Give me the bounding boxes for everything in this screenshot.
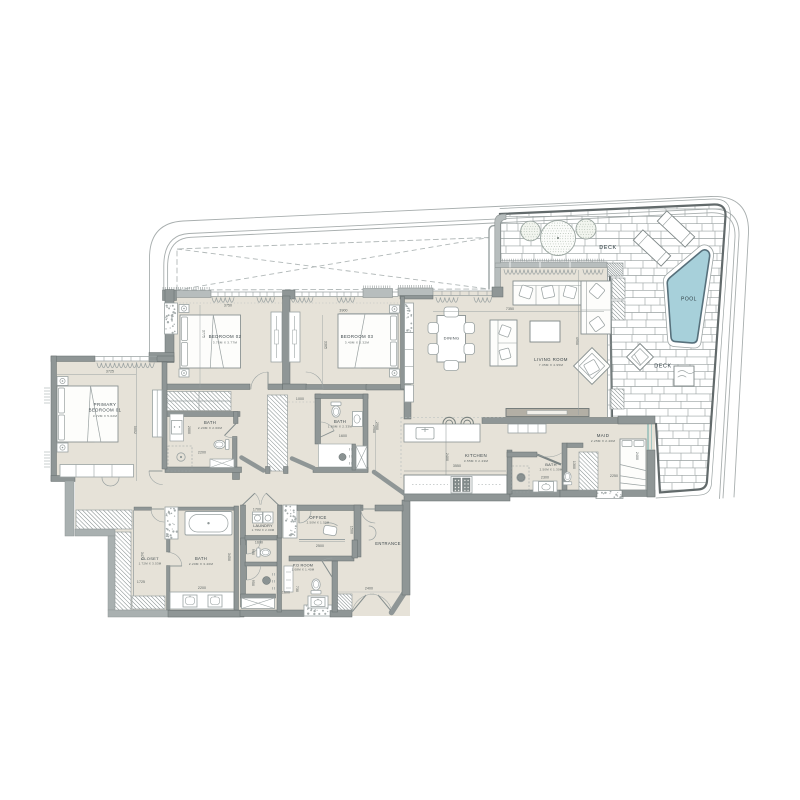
- svg-text:3450: 3450: [227, 553, 231, 561]
- svg-text:DECK: DECK: [654, 364, 671, 370]
- svg-text:BATH: BATH: [204, 420, 216, 425]
- svg-text:2500: 2500: [316, 544, 324, 548]
- svg-text:1700: 1700: [253, 508, 261, 512]
- svg-text:OFFICE: OFFICE: [309, 515, 326, 520]
- svg-text:KITCHEN: KITCHEN: [465, 453, 487, 458]
- svg-text:3473: 3473: [140, 552, 144, 560]
- svg-text:3.75M X 3.77M: 3.75M X 3.77M: [213, 341, 237, 345]
- svg-text:3550: 3550: [453, 464, 461, 468]
- svg-text:3775: 3775: [202, 330, 206, 338]
- svg-text:3305: 3305: [324, 341, 328, 349]
- svg-text:3900: 3900: [339, 309, 347, 313]
- svg-text:2400: 2400: [365, 587, 373, 591]
- svg-text:2400: 2400: [635, 452, 639, 460]
- svg-text:ENTRANCE: ENTRANCE: [375, 541, 400, 546]
- svg-text:MAID: MAID: [597, 433, 610, 438]
- svg-text:POOL: POOL: [681, 297, 697, 303]
- svg-text:2.20M X 2.00M: 2.20M X 2.00M: [198, 426, 222, 430]
- svg-text:2900: 2900: [375, 422, 379, 430]
- svg-text:960: 960: [251, 549, 255, 555]
- svg-text:1600: 1600: [255, 541, 263, 545]
- svg-text:950: 950: [251, 580, 255, 586]
- svg-text:BATH: BATH: [334, 419, 346, 424]
- svg-text:2.20M X 3.40M: 2.20M X 3.40M: [189, 562, 213, 566]
- svg-text:BEDROOM 02: BEDROOM 02: [209, 334, 242, 339]
- svg-text:7350: 7350: [506, 307, 514, 311]
- svg-text:730: 730: [295, 586, 299, 592]
- svg-text:2250: 2250: [610, 474, 618, 478]
- svg-text:3.40M X 3.32M: 3.40M X 3.32M: [345, 341, 369, 345]
- svg-text:1000: 1000: [296, 397, 304, 401]
- svg-text:2000: 2000: [187, 426, 191, 434]
- svg-text:1600: 1600: [282, 591, 290, 595]
- svg-text:LIVING ROOM: LIVING ROOM: [534, 357, 568, 362]
- svg-text:3725: 3725: [106, 370, 114, 374]
- svg-text:2.25M X 2.40M: 2.25M X 2.40M: [591, 439, 615, 443]
- svg-text:1725: 1725: [137, 580, 145, 584]
- svg-text:7.35M X 4.95M: 7.35M X 4.95M: [539, 363, 563, 367]
- svg-text:BEDROOM 01: BEDROOM 01: [89, 408, 122, 413]
- svg-text:3.72M X 5.02M: 3.72M X 5.02M: [93, 414, 117, 418]
- svg-text:2300: 2300: [541, 476, 549, 480]
- svg-text:1600: 1600: [339, 434, 347, 438]
- svg-text:3.55M X 2.43M: 3.55M X 2.43M: [464, 459, 488, 463]
- svg-text:PRIMARY: PRIMARY: [94, 402, 117, 407]
- svg-text:BATH: BATH: [545, 462, 557, 467]
- svg-text:DECK: DECK: [599, 245, 616, 251]
- svg-text:1.08M X 1.40M: 1.08M X 1.40M: [292, 568, 315, 572]
- svg-text:3750: 3750: [224, 304, 232, 308]
- svg-text:1.75M X 2.00M: 1.75M X 2.00M: [252, 528, 275, 532]
- svg-text:2200: 2200: [198, 451, 206, 455]
- svg-text:1.80M X 2.33M: 1.80M X 2.33M: [328, 425, 352, 429]
- svg-text:BATH: BATH: [195, 556, 207, 561]
- svg-text:1.72M X 3.53M: 1.72M X 3.53M: [139, 562, 162, 566]
- svg-text:2.50M X 1.50M: 2.50M X 1.50M: [307, 521, 330, 525]
- svg-text:2200: 2200: [198, 586, 206, 590]
- svg-text:2.50M X 1.30M: 2.50M X 1.30M: [540, 467, 563, 471]
- svg-text:2400: 2400: [445, 453, 449, 461]
- svg-text:1300: 1300: [572, 461, 576, 469]
- svg-text:DINING: DINING: [444, 336, 460, 341]
- svg-text:BEDROOM 03: BEDROOM 03: [341, 334, 374, 339]
- svg-text:1500: 1500: [350, 526, 354, 534]
